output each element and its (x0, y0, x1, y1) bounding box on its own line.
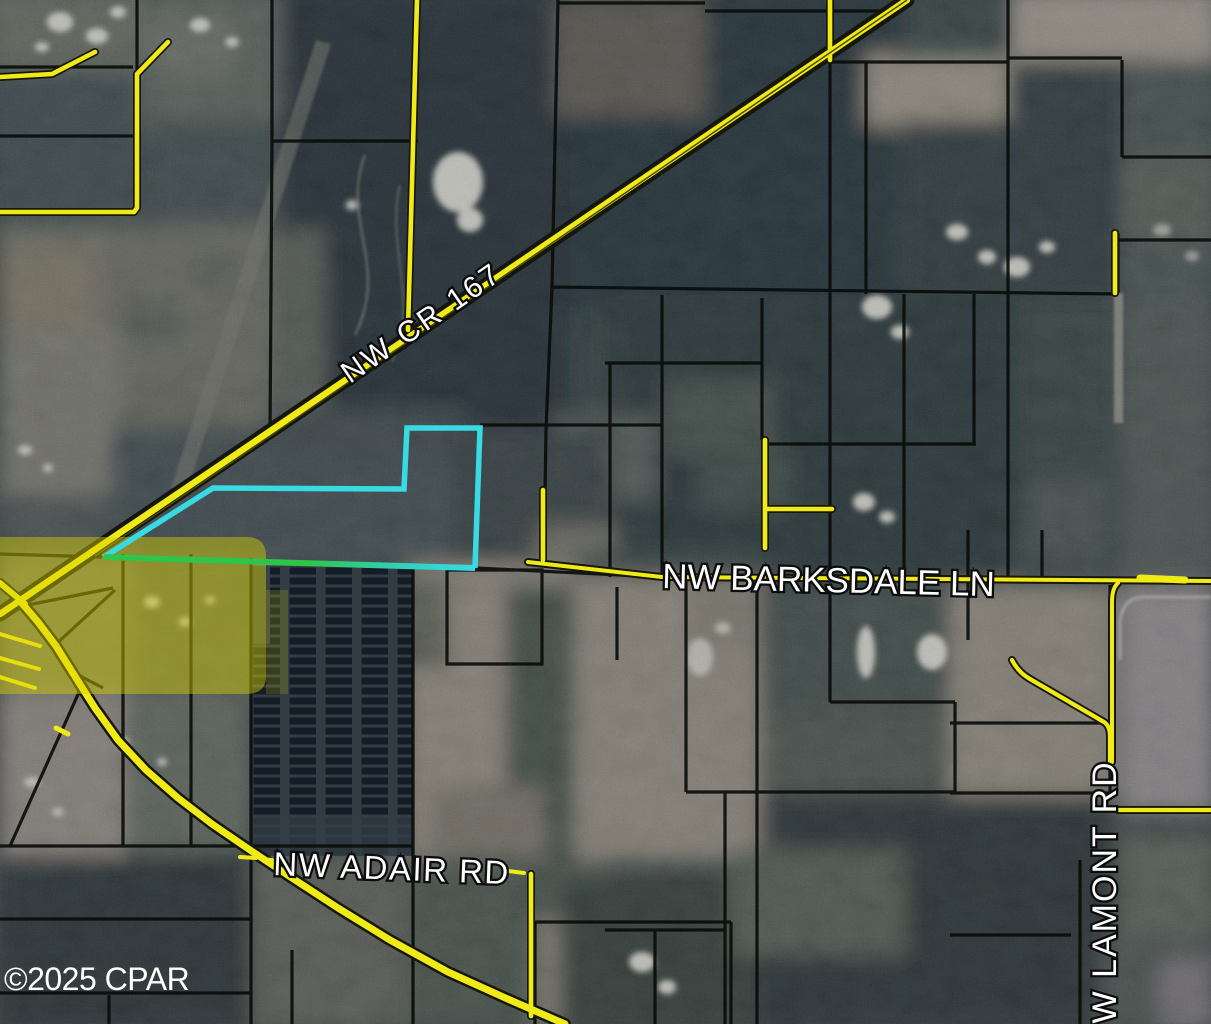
svg-text:©2025 CPAR: ©2025 CPAR (4, 961, 189, 997)
svg-text:NW BARKSDALE LN: NW BARKSDALE LN (662, 557, 995, 604)
svg-text:NW LAMONT RD: NW LAMONT RD (1086, 760, 1124, 1024)
